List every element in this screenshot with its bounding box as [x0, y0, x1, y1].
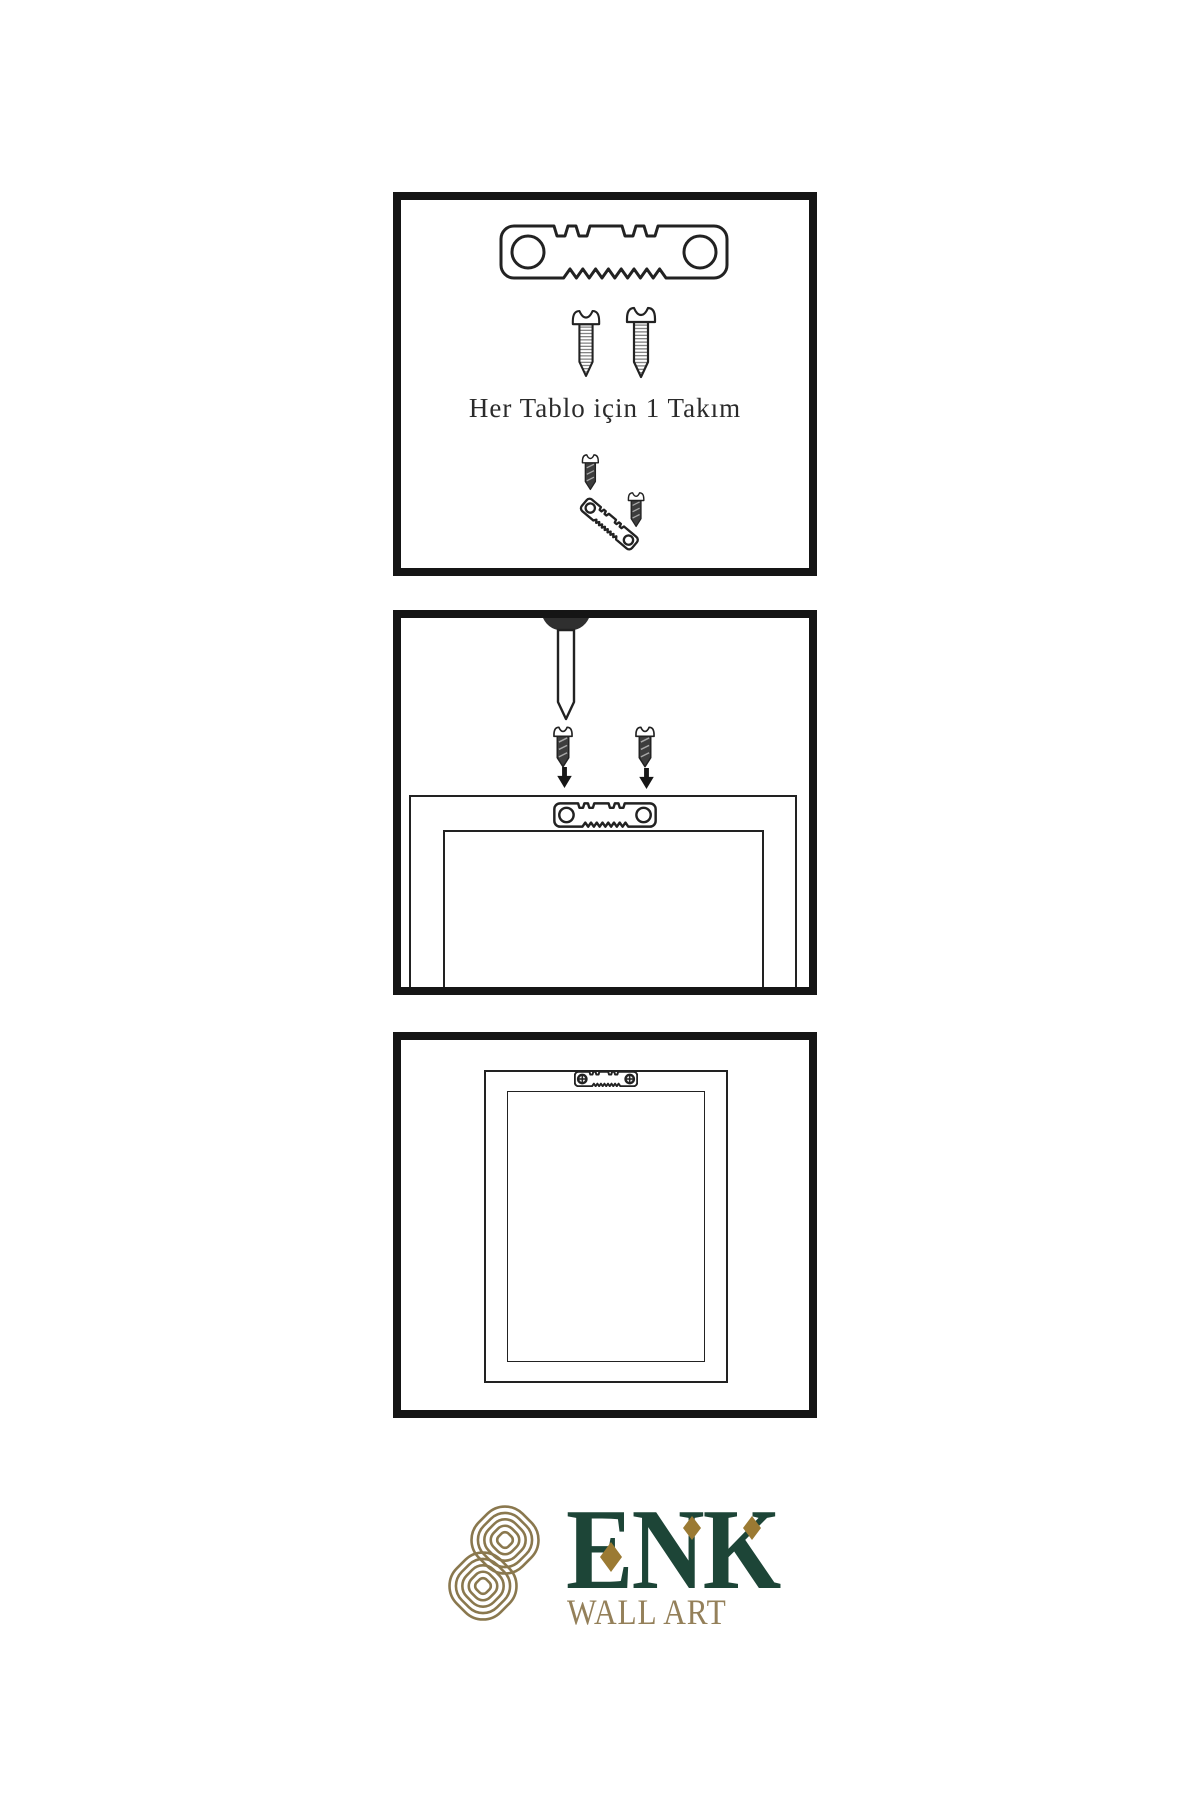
down-arrow-icon — [639, 768, 654, 789]
phillips-screw-head-icon — [579, 1075, 586, 1082]
dark-screw-icon — [552, 724, 574, 770]
brand-tagline: WALL ART — [567, 1591, 727, 1633]
screw-icon — [624, 303, 658, 381]
down-arrow-icon — [557, 767, 572, 788]
step-1-panel: Her Tablo için 1 Takım — [393, 192, 817, 576]
dark-screw-icon — [634, 724, 656, 770]
kit-caption: Her Tablo için 1 Takım — [401, 393, 809, 424]
instruction-sheet: Her Tablo için 1 Takım — [0, 0, 1200, 1800]
sawtooth-hanger-icon — [498, 223, 730, 281]
wall-nail-icon — [543, 618, 589, 722]
step-2-panel — [393, 610, 817, 995]
screw-into-hanger-icon — [577, 450, 661, 554]
knot-logo-icon — [437, 1498, 553, 1627]
phillips-screw-head-icon — [626, 1075, 633, 1082]
mounted-hanger-icon — [574, 1071, 638, 1087]
step-3-panel — [393, 1032, 817, 1418]
sawtooth-hanger-icon — [553, 802, 657, 828]
frame-back-inner-outline — [507, 1091, 705, 1362]
frame-back-inner-outline — [443, 830, 764, 995]
screw-icon — [570, 304, 602, 382]
